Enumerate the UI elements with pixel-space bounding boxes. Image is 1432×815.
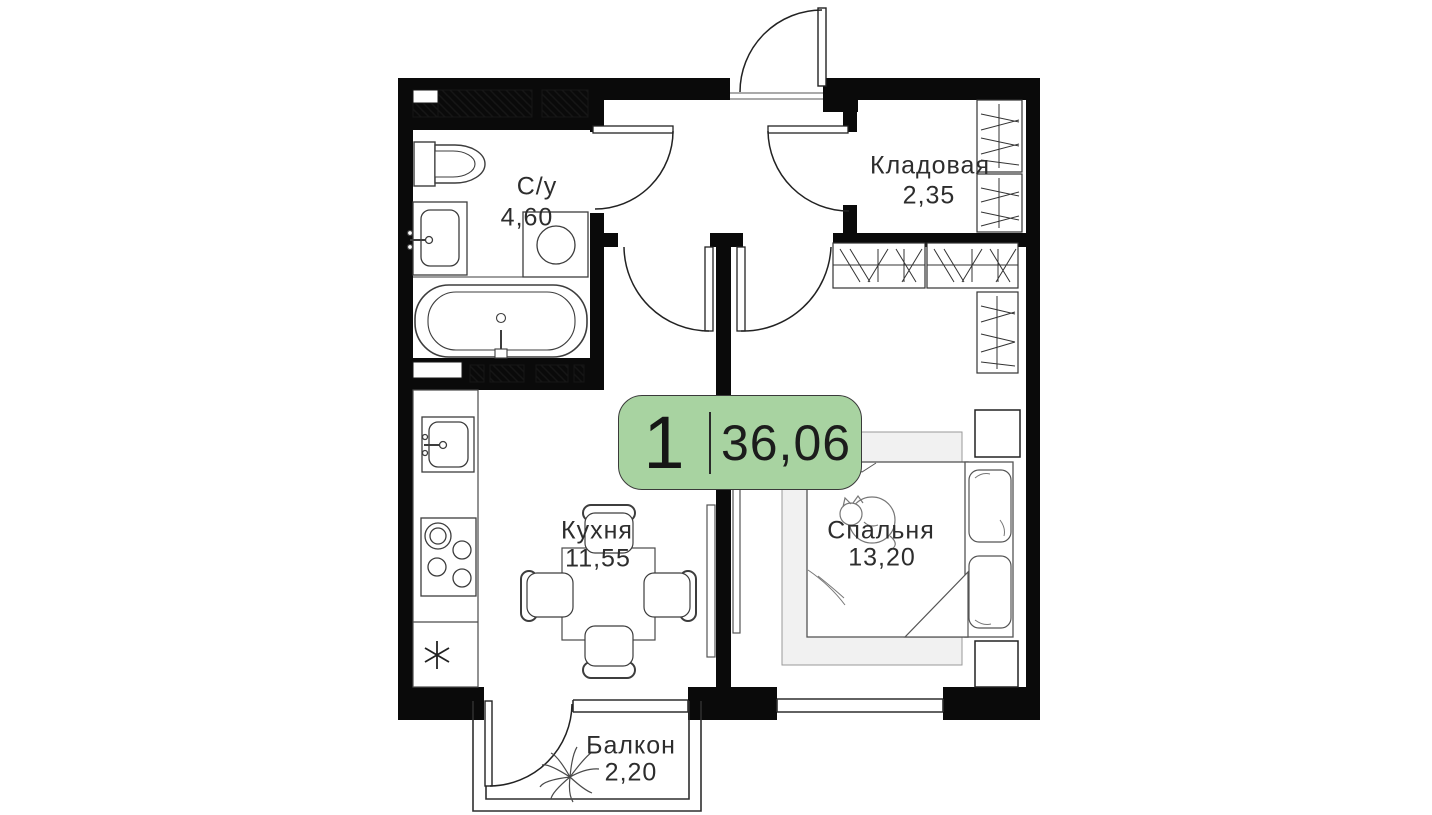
bedroom-label: Спальня xyxy=(827,517,934,546)
kitchen-door xyxy=(624,247,713,331)
apartment-badge: 1 36,06 xyxy=(618,395,862,490)
toilet xyxy=(414,142,485,186)
balcony-door xyxy=(485,701,572,786)
bedroom-area: 13,20 xyxy=(848,544,916,573)
entrance-door xyxy=(730,8,826,99)
kitchen-label: Кухня xyxy=(561,517,633,546)
bathroom-door xyxy=(593,126,673,209)
bedroom-door xyxy=(737,247,831,331)
stove xyxy=(421,518,476,596)
kitchen-window xyxy=(573,700,688,712)
storage-door xyxy=(768,126,849,211)
bathroom-area: 4,60 xyxy=(501,204,554,233)
bathtub xyxy=(415,285,587,358)
badge-total-area: 36,06 xyxy=(711,414,861,472)
kitchen-sink xyxy=(422,417,474,472)
bedroom-window xyxy=(777,699,943,712)
balcony-label: Балкон xyxy=(586,732,676,761)
floor-plan: С/у 4,60 Кладовая 2,35 Кухня 11,55 Спаль… xyxy=(0,0,1432,815)
bathroom-label: С/у xyxy=(517,173,558,202)
kitchen-area: 11,55 xyxy=(565,545,631,574)
badge-rooms-count: 1 xyxy=(619,395,709,490)
balcony-area: 2,20 xyxy=(605,759,658,788)
storage-label: Кладовая xyxy=(870,152,990,181)
bathroom-sink xyxy=(408,202,468,275)
storage-area: 2,35 xyxy=(903,182,956,211)
